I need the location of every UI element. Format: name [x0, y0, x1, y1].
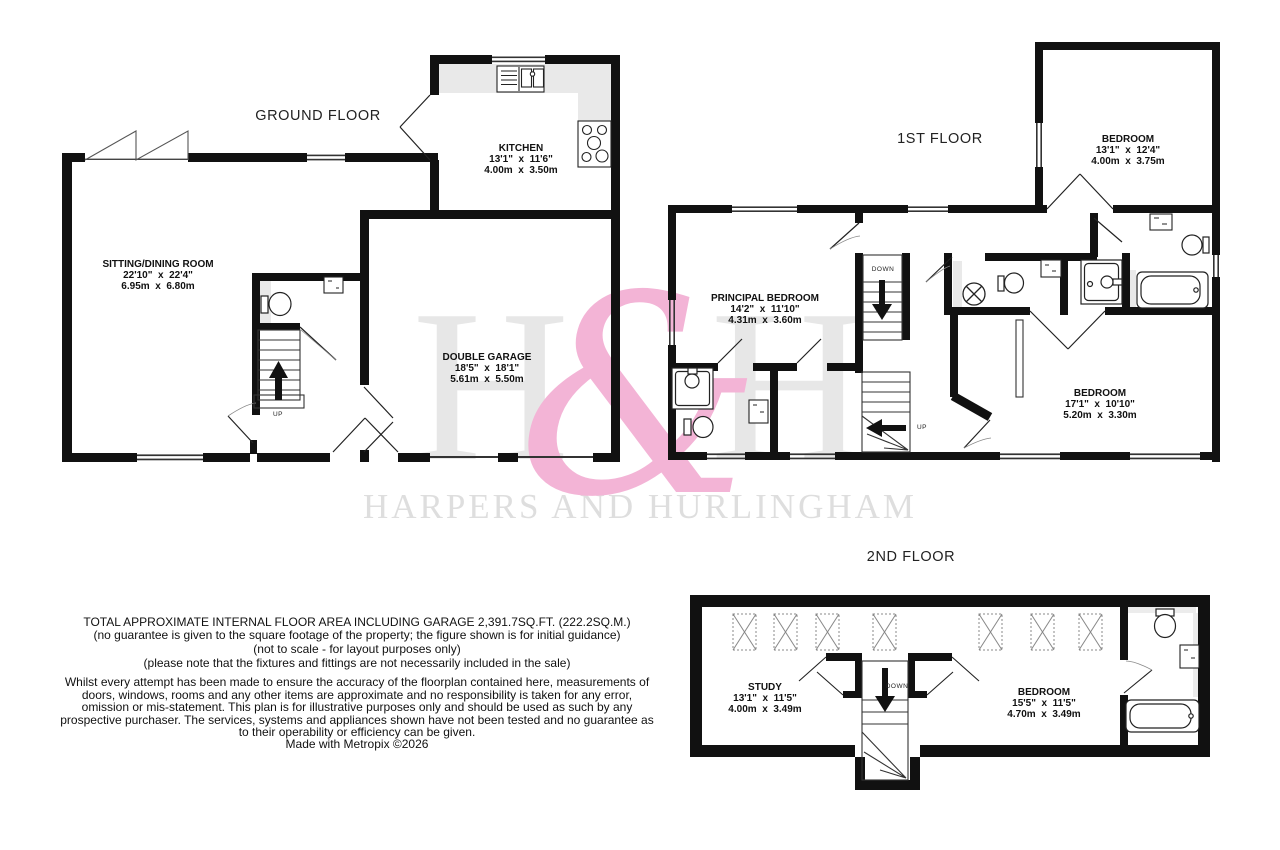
second-down-label: DOWN — [886, 683, 909, 690]
down-arrow-icon — [875, 668, 895, 712]
shower-shading — [953, 261, 962, 307]
first-floor-plan — [660, 38, 1225, 466]
room-label-study: STUDY13'1" x 11'5"4.00m x 3.49m — [728, 660, 801, 737]
bathtub-icon — [1126, 700, 1199, 732]
room-label-double-garage: DOUBLE GARAGE18'5" x 18'1"5.61m x 5.50m — [443, 330, 532, 407]
bifold-door-icon — [85, 131, 188, 160]
bathroom-toilet-icon — [998, 273, 1024, 293]
room-label-bedroom-2: BEDROOM17'1" x 10'10"5.20m x 3.30m — [1063, 366, 1136, 443]
ensuite2-basin-icon — [1150, 214, 1172, 230]
room-label-bedroom-1: BEDROOM13'1" x 12'4"4.00m x 3.75m — [1091, 112, 1164, 189]
ensuite-toilet-icon — [684, 417, 713, 438]
shower-icon — [963, 283, 985, 305]
disclaimer-note-1: (no guarantee is given to the square foo… — [57, 629, 657, 643]
down-arrow-icon — [872, 280, 892, 320]
total-area-line: TOTAL APPROXIMATE INTERNAL FLOOR AREA IN… — [57, 615, 657, 629]
ensuite2-toilet-icon — [1182, 235, 1209, 255]
disclaimer-block: TOTAL APPROXIMATE INTERNAL FLOOR AREA IN… — [57, 615, 657, 751]
ground-up-label: UP — [273, 411, 283, 418]
second-floor-title: 2ND FLOOR — [867, 549, 955, 565]
bathroom-basin-icon — [1180, 645, 1199, 668]
disclaimer-body: Whilst every attempt has been made to en… — [57, 676, 657, 738]
room-label-sitting-dining: SITTING/DINING ROOM22'10" x 22'4"6.95m x… — [102, 237, 213, 314]
bathroom-toilet-icon — [1155, 609, 1176, 638]
bathtub-icon — [1137, 272, 1208, 308]
sink-unit-icon — [1081, 260, 1122, 304]
first-floor-title: 1ST FLOOR — [897, 131, 983, 147]
second-doors — [799, 657, 1152, 695]
bathroom-basin-icon — [1041, 260, 1061, 277]
angled-wall — [953, 396, 990, 417]
first-walls — [668, 42, 1220, 462]
ensuite-basin-icon — [749, 400, 768, 423]
shower-tray-icon — [672, 368, 713, 409]
room-label-bedroom-3: BEDROOM15'5" x 11'5"4.70m x 3.49m — [1007, 665, 1080, 742]
first-down-label: DOWN — [872, 266, 895, 273]
wardrobe — [1016, 320, 1023, 397]
floorplan-page: H&H HARPERS AND HURLINGHAM — [0, 0, 1280, 850]
metropix-credit: Made with Metropix ©2026 — [57, 738, 657, 751]
stairs-up — [862, 372, 910, 452]
kitchen-sink-icon — [497, 66, 544, 92]
wc-basin-icon — [324, 277, 343, 293]
wc-toilet-icon — [261, 293, 291, 316]
disclaimer-note-3: (please note that the fixtures and fitti… — [57, 657, 657, 671]
hob-icon — [578, 121, 611, 167]
skylight-icons — [733, 614, 1102, 650]
room-label-principal-bedroom: PRINCIPAL BEDROOM14'2" x 11'10"4.31m x 3… — [711, 271, 819, 348]
first-up-label: UP — [917, 424, 927, 431]
ground-floor-title: GROUND FLOOR — [255, 108, 381, 124]
room-label-kitchen: KITCHEN13'1" x 11'6"4.00m x 3.50m — [484, 121, 557, 198]
disclaimer-note-2: (not to scale - for layout purposes only… — [57, 643, 657, 657]
